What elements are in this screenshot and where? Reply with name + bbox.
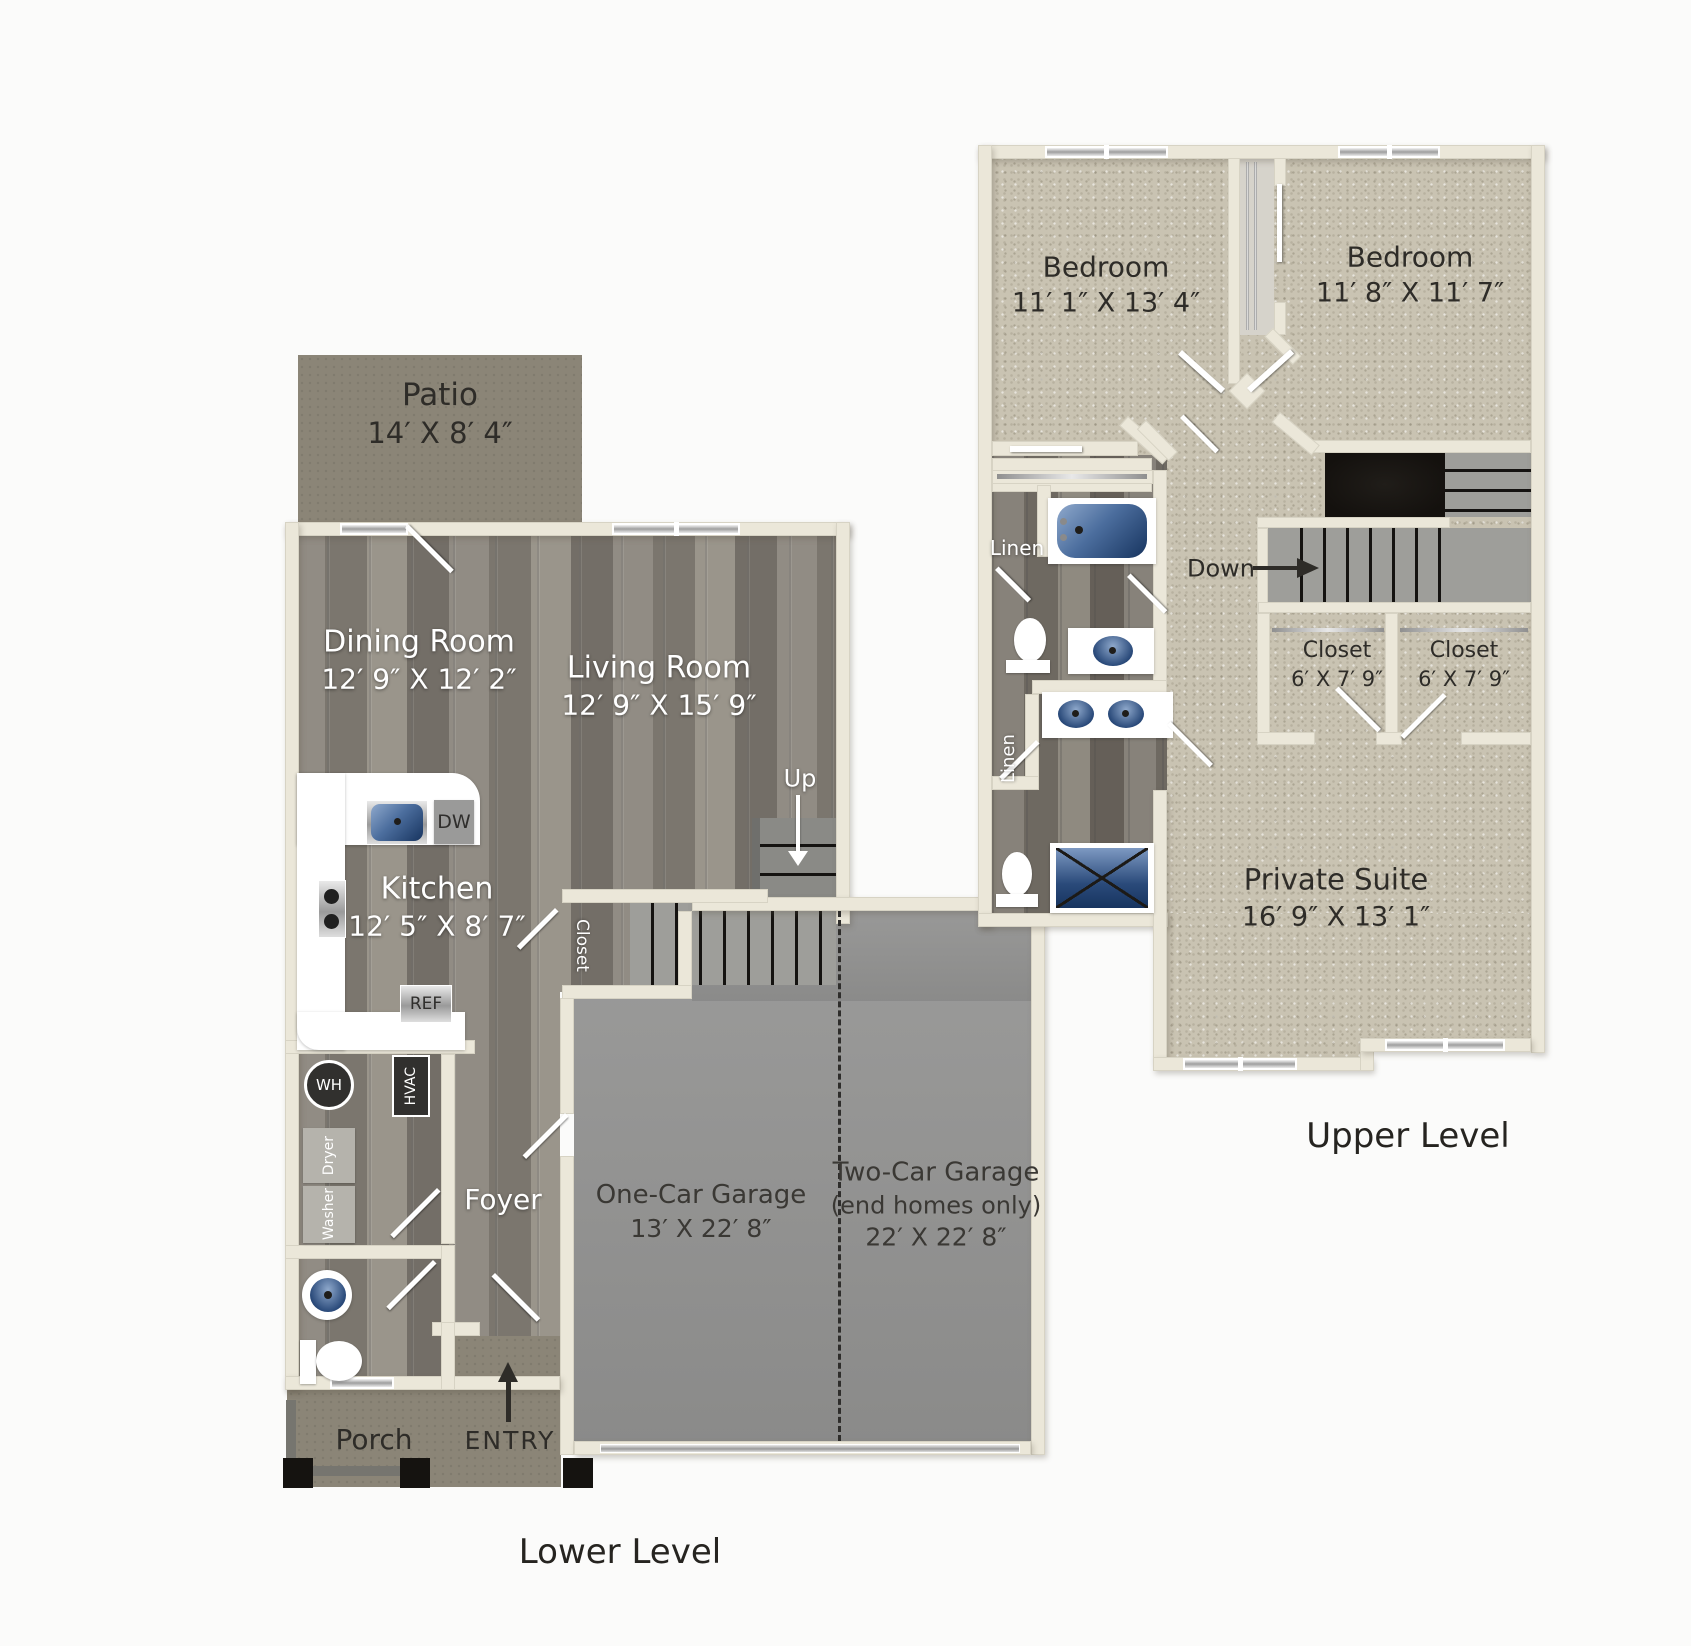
closet-rod — [1272, 628, 1384, 632]
faucet-icon — [1060, 534, 1067, 541]
drain-icon — [324, 1291, 332, 1299]
dishwasher: DW — [434, 800, 474, 844]
drain-icon — [1072, 710, 1079, 717]
room-note: (end homes only) — [831, 1190, 1042, 1221]
wall — [1153, 790, 1167, 1060]
room-dims: 12′ 9″ X 12′ 2″ — [321, 661, 516, 697]
stair-winders — [1445, 452, 1531, 517]
porch-post — [283, 1458, 313, 1488]
wall — [1257, 528, 1268, 613]
washer-label: Washer — [321, 1188, 337, 1240]
shower — [1056, 848, 1148, 908]
entry-arrow-head-icon — [498, 1362, 518, 1382]
porch-rail — [286, 1400, 296, 1460]
wall — [1385, 613, 1398, 745]
window-divider — [1443, 1038, 1448, 1052]
down-arrow-head-icon — [1297, 558, 1319, 578]
wall — [1258, 602, 1531, 613]
foyer-label: Foyer — [464, 1182, 542, 1218]
wall — [978, 913, 1168, 927]
wall — [836, 522, 850, 924]
dryer: Dryer — [303, 1128, 355, 1183]
one-car-garage-label: One-Car Garage 13′ X 22′ 8″ — [596, 1179, 807, 1245]
bathtub — [1057, 504, 1147, 558]
down-arrow-icon — [1253, 566, 1297, 570]
porch-post — [563, 1458, 593, 1488]
toilet-bowl — [1014, 618, 1046, 662]
room-name: Private Suite — [1242, 862, 1430, 900]
toilet-bowl — [1002, 852, 1032, 896]
room-name: Closet — [1291, 637, 1383, 666]
porch-label: Porch — [335, 1422, 412, 1458]
wall — [1274, 158, 1286, 186]
wall — [1257, 732, 1315, 745]
room-name: Bedroom — [1012, 249, 1200, 285]
refrigerator: REF — [400, 985, 452, 1023]
room-name: Closet — [1418, 637, 1510, 666]
wall — [441, 1054, 455, 1244]
chase-line — [1246, 162, 1249, 330]
garage-door — [600, 1444, 1020, 1453]
dining-room-label: Dining Room 12′ 9″ X 12′ 2″ — [321, 622, 516, 697]
patio-label: Patio 14′ X 8′ 4″ — [367, 375, 512, 453]
up-label: Up — [784, 763, 817, 794]
wall — [1376, 732, 1402, 745]
room-name: One-Car Garage — [596, 1179, 807, 1213]
porch-post — [400, 1458, 430, 1488]
bedroom1-window — [1045, 146, 1168, 158]
water-heater-label: WH — [316, 1076, 342, 1094]
bedroom2-window — [1338, 146, 1440, 158]
up-arrow-head-icon — [788, 851, 808, 866]
entry-arrow-icon — [506, 1380, 511, 1422]
patio-slider-window — [340, 523, 408, 535]
room-dims: 6′ X 7′ 9″ — [1418, 666, 1510, 693]
window-divider — [1104, 145, 1109, 159]
room-dims: 14′ X 8′ 4″ — [367, 415, 512, 453]
washer: Washer — [303, 1186, 355, 1243]
wall — [1257, 517, 1450, 528]
two-car-garage-label: Two-Car Garage (end homes only) 22′ X 22… — [831, 1156, 1042, 1253]
wall — [441, 1322, 455, 1390]
room-dims: 12′ 5″ X 8′ 7″ — [348, 908, 526, 944]
room-name: Patio — [367, 375, 512, 415]
window-divider — [1387, 145, 1392, 159]
closet-rod — [1400, 628, 1528, 632]
window-divider — [1238, 1057, 1243, 1071]
window-divider — [674, 522, 679, 536]
room-name: Bedroom — [1316, 239, 1504, 275]
water-heater: WH — [304, 1060, 354, 1110]
burner-icon — [324, 914, 339, 929]
wall — [1461, 732, 1531, 745]
closet2-label: Closet 6′ X 7′ 9″ — [1418, 637, 1510, 693]
wall — [1025, 694, 1039, 780]
room-dims: 6′ X 7′ 9″ — [1291, 666, 1383, 693]
room-name: Kitchen — [348, 869, 526, 908]
lower-level-title: Lower Level — [519, 1530, 721, 1574]
wall — [1313, 440, 1531, 453]
suite-window — [1183, 1058, 1297, 1070]
toilet-tank — [300, 1340, 316, 1384]
dishwasher-label: DW — [437, 811, 470, 833]
suite-carpet — [1167, 913, 1531, 1057]
silver-strip — [997, 474, 1147, 479]
room-dims: 11′ 1″ X 13′ 4″ — [1012, 286, 1200, 321]
drain-icon — [1122, 710, 1129, 717]
wall — [1257, 613, 1270, 745]
suite-window — [1385, 1039, 1505, 1051]
bedroom1-label: Bedroom 11′ 1″ X 13′ 4″ — [1012, 249, 1200, 320]
wall — [562, 889, 768, 903]
room-name: Dining Room — [321, 622, 516, 661]
bedroom2-label: Bedroom 11′ 8″ X 11′ 7″ — [1316, 239, 1504, 310]
wall — [560, 1156, 574, 1455]
drain-icon — [1075, 526, 1083, 534]
stair-landing — [1325, 452, 1445, 517]
private-suite-label: Private Suite 16′ 9″ X 13′ 1″ — [1242, 862, 1430, 935]
wall — [1228, 158, 1240, 384]
dryer-label: Dryer — [321, 1136, 337, 1175]
down-label: Down — [1187, 553, 1255, 584]
kitchen-label: Kitchen 12′ 5″ X 8′ 7″ — [348, 869, 526, 944]
toilet-base — [1006, 660, 1050, 673]
room-name: Two-Car Garage — [831, 1156, 1042, 1190]
refrigerator-label: REF — [410, 994, 442, 1014]
porch-rail — [310, 1466, 402, 1476]
floor-plan: DW REF WH HVAC Dryer Washer — [0, 0, 1691, 1646]
room-dims: 11′ 8″ X 11′ 7″ — [1316, 276, 1504, 311]
closet1-label: Closet 6′ X 7′ 9″ — [1291, 637, 1383, 693]
wall — [1531, 145, 1545, 1053]
entry-label: ENTRY — [465, 1425, 556, 1458]
room-dims: 13′ X 22′ 8″ — [596, 1213, 807, 1246]
chase-line — [1254, 162, 1257, 330]
stairs-lower-flight — [630, 903, 836, 985]
toilet-base — [996, 894, 1038, 907]
burner-icon — [324, 889, 339, 904]
living-room-window — [612, 523, 740, 535]
drain-icon — [1109, 647, 1116, 654]
toilet-bowl — [316, 1341, 362, 1381]
pocket-door — [1277, 184, 1282, 262]
up-arrow-icon — [796, 795, 800, 851]
upper-level-title: Upper Level — [1306, 1114, 1510, 1158]
living-room-label: Living Room 12′ 9″ X 15′ 9″ — [561, 648, 756, 723]
room-dims: 12′ 9″ X 15′ 9″ — [561, 687, 756, 723]
wall — [285, 1245, 455, 1259]
linen1-label: Linen — [990, 535, 1044, 561]
wall — [562, 985, 692, 999]
stair-closet-label: Closet — [572, 912, 592, 978]
closet-slider-door — [1010, 446, 1082, 452]
hvac-unit: HVAC — [392, 1055, 430, 1117]
hvac-label: HVAC — [403, 1067, 419, 1105]
carpet-mask — [1374, 1052, 1531, 1076]
faucet-icon — [1060, 518, 1067, 525]
room-dims: 16′ 9″ X 13′ 1″ — [1242, 899, 1430, 934]
wall — [560, 998, 574, 1114]
faucet-icon — [394, 818, 401, 825]
wall — [432, 1322, 480, 1336]
room-name: Living Room — [561, 648, 756, 687]
room-dims: 22′ X 22′ 8″ — [831, 1221, 1042, 1254]
linen2-label: Linen — [998, 728, 1019, 790]
